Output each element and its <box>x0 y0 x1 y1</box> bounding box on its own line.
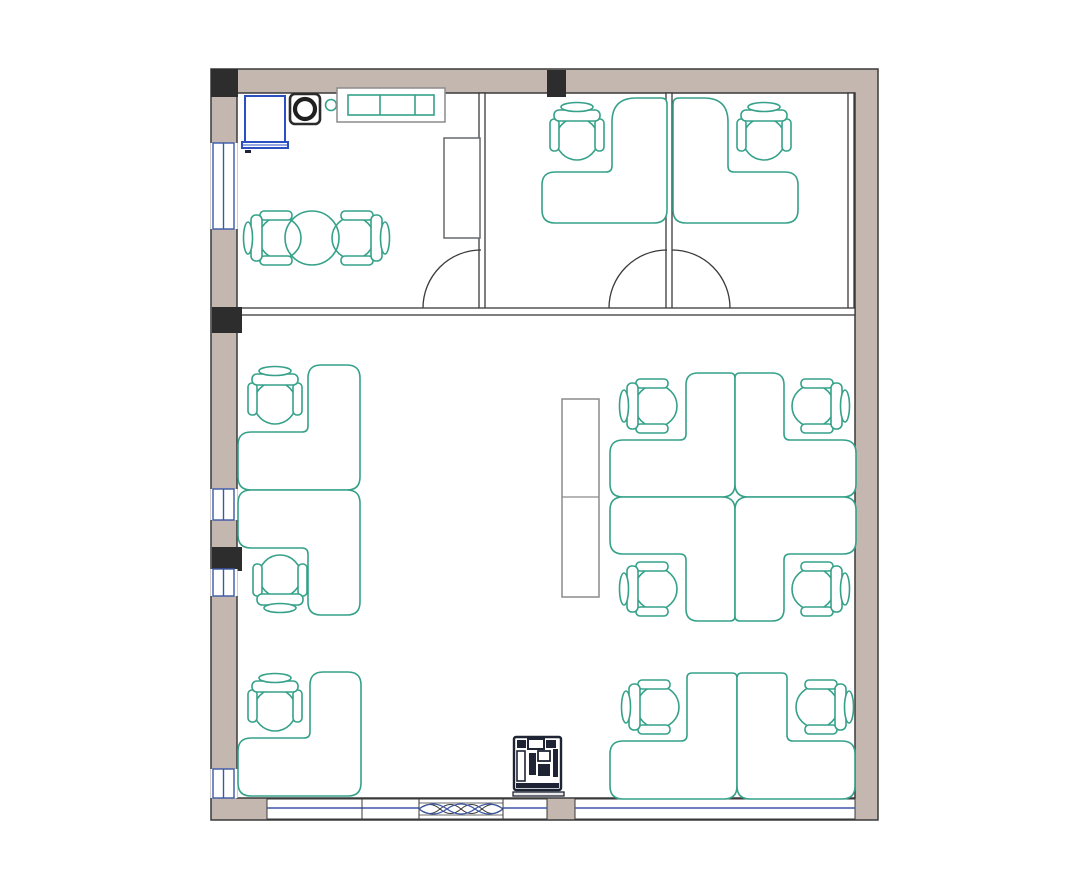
office-chair[interactable] <box>620 379 678 433</box>
office-chair[interactable] <box>620 562 678 616</box>
office-chair[interactable] <box>737 103 791 161</box>
column-top-left <box>211 69 238 97</box>
break-room <box>242 88 480 265</box>
workstation-3[interactable] <box>238 672 361 796</box>
meeting-chair-right[interactable] <box>332 211 390 265</box>
partition-horizontal-divider <box>237 308 855 315</box>
blue-cabinet[interactable] <box>242 96 288 153</box>
workstation-1[interactable] <box>238 365 360 490</box>
open-office-area <box>238 365 856 799</box>
partition-right-inner <box>848 93 854 309</box>
private-office-left <box>542 98 667 223</box>
door-arc-office-right[interactable] <box>672 250 730 308</box>
bottom-wall-window-2[interactable] <box>503 799 547 819</box>
office-chair[interactable] <box>792 562 850 616</box>
doors <box>423 250 730 308</box>
floor-plan-drawing <box>0 0 1080 874</box>
left-wall-window-3[interactable] <box>211 569 238 596</box>
storage-cabinet[interactable] <box>562 399 599 597</box>
wall-shelf-unit[interactable] <box>337 88 445 122</box>
office-chair[interactable] <box>550 103 604 161</box>
bottom-wall-window-1[interactable] <box>267 799 419 819</box>
quad-desk-cluster <box>610 373 856 621</box>
office-chair[interactable] <box>253 555 307 613</box>
column-top-mid <box>547 70 566 97</box>
private-office-right <box>673 98 798 223</box>
door-arc-office-left[interactable] <box>609 250 667 308</box>
left-wall-window-1[interactable] <box>211 143 238 229</box>
bottom-right-desk-pair <box>610 673 855 799</box>
floor-plan-canvas <box>0 0 1080 874</box>
office-chair[interactable] <box>248 674 302 732</box>
stool[interactable] <box>326 100 337 111</box>
tall-cabinet[interactable] <box>444 138 480 238</box>
workstation-2[interactable] <box>238 490 360 615</box>
bottom-wall-window-3[interactable] <box>575 799 855 819</box>
coffee-machine[interactable] <box>290 94 320 124</box>
office-chair[interactable] <box>622 680 680 734</box>
copier[interactable] <box>513 737 564 796</box>
glazed-wave-panel[interactable] <box>419 799 503 819</box>
office-chair[interactable] <box>792 379 850 433</box>
column-left-mid <box>212 307 242 333</box>
left-wall-window-2[interactable] <box>211 489 238 520</box>
office-chair[interactable] <box>796 680 854 734</box>
column-left-lower <box>212 547 242 571</box>
left-wall-window-4[interactable] <box>211 769 238 798</box>
left-desk-row <box>238 365 361 796</box>
door-arc-break-room[interactable] <box>423 250 481 308</box>
office-chair[interactable] <box>248 367 302 425</box>
